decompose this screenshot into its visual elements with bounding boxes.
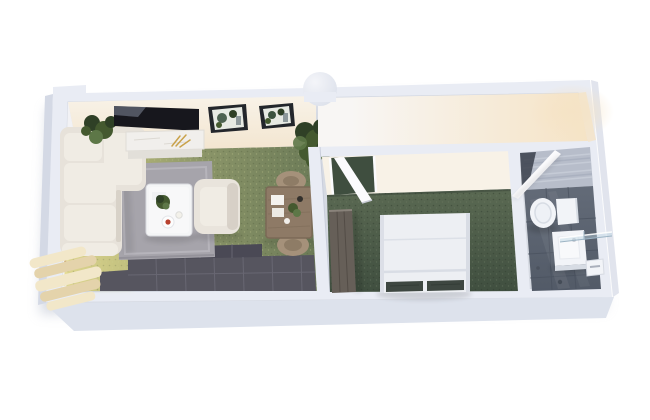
pillow-right — [427, 280, 464, 291]
plate-food — [165, 219, 170, 224]
coffee-table — [144, 184, 196, 243]
floor-drain — [558, 280, 562, 284]
tile-left — [100, 270, 128, 291]
living-dining-room — [29, 96, 334, 313]
cup — [176, 212, 182, 218]
wall-column — [303, 72, 337, 106]
armchair — [193, 179, 243, 241]
floor-plan-canvas — [0, 0, 650, 420]
daylight-glow — [530, 84, 614, 140]
placemat2 — [272, 208, 284, 217]
bedroom — [308, 147, 522, 300]
wardrobe — [329, 210, 356, 293]
paper-holder — [586, 259, 604, 276]
cup2 — [284, 218, 290, 224]
bed — [380, 213, 470, 293]
media-console — [126, 130, 204, 151]
bottle — [297, 196, 303, 202]
placemat — [271, 195, 284, 205]
floor-mark — [536, 266, 540, 270]
pillow-left — [386, 281, 423, 292]
